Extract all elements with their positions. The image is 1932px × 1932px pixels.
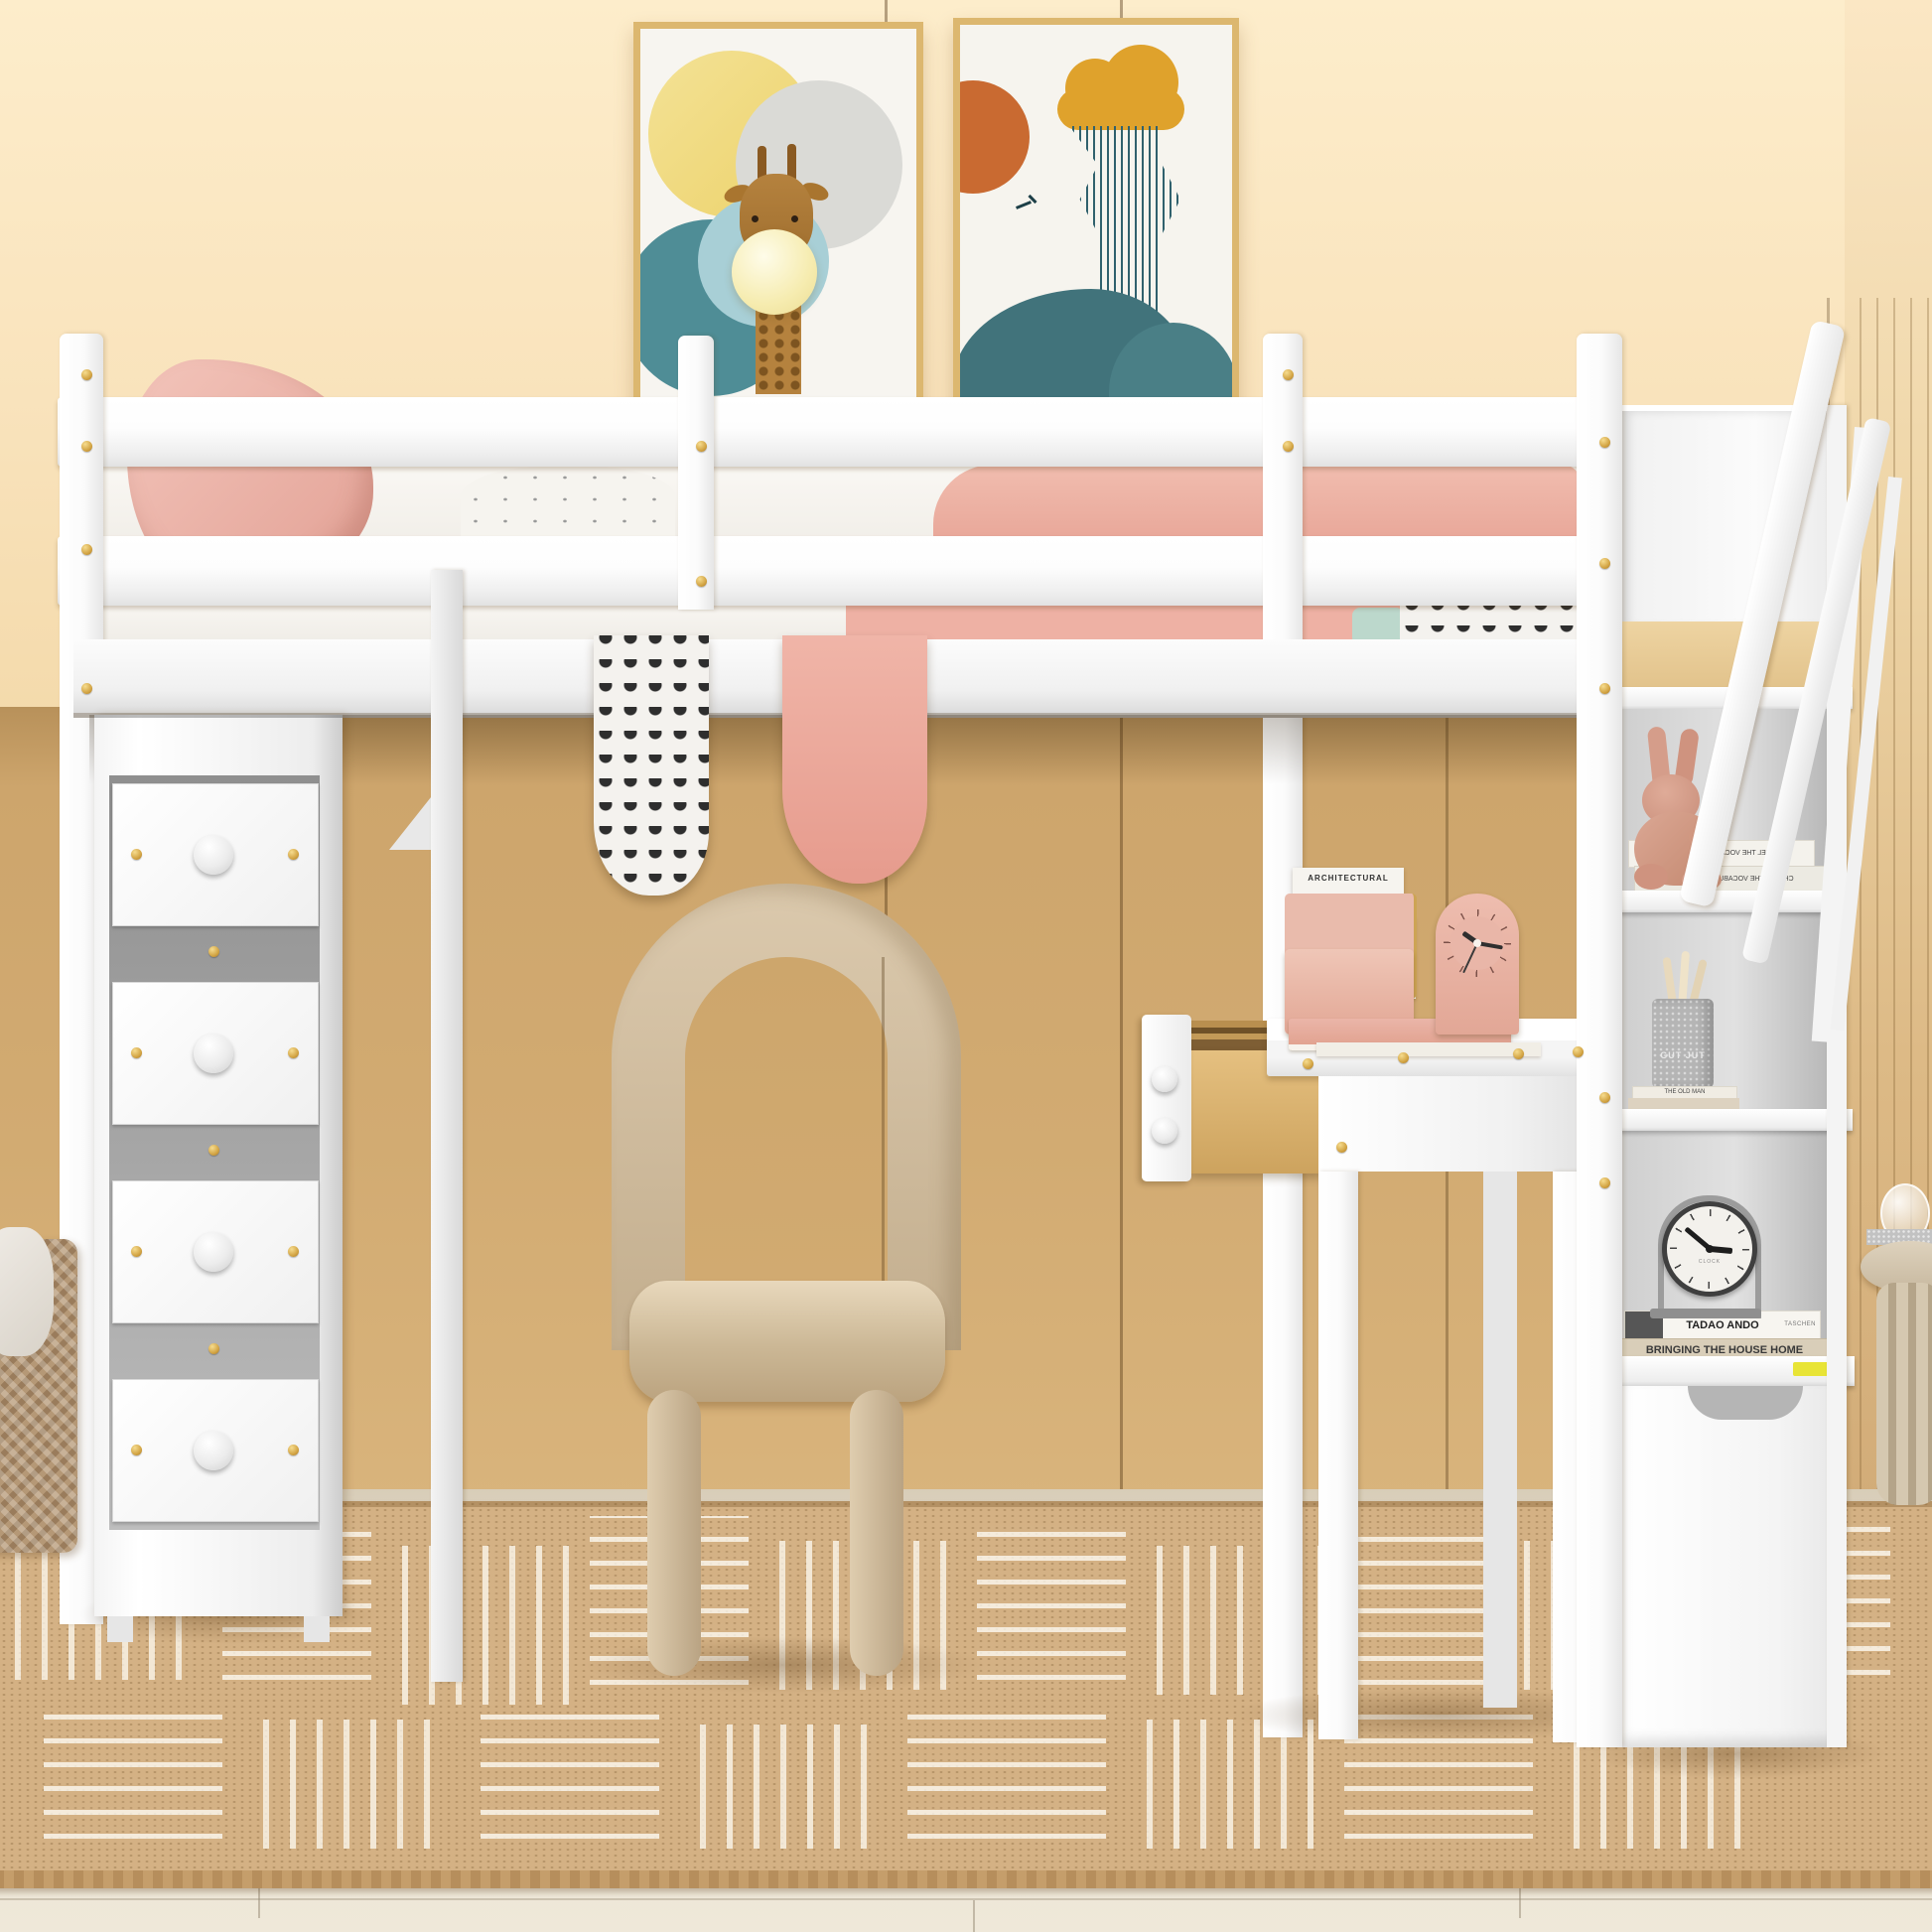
screw-icon	[1283, 369, 1294, 380]
chest-leg	[304, 1616, 330, 1642]
screw-icon	[1599, 683, 1610, 694]
chest-drawer-knob	[194, 1034, 233, 1073]
screw-icon	[208, 1145, 219, 1156]
blanket-pink	[933, 465, 1581, 544]
chair-shadow	[584, 1636, 985, 1694]
chest-drawer-knob	[194, 835, 233, 875]
basket-cloth	[0, 1227, 54, 1356]
desk-clock-center-dot	[1473, 939, 1481, 947]
drawer-arc-handle	[1688, 1386, 1803, 1420]
rug-pattern-block	[1344, 1521, 1493, 1695]
art-print-giraffe	[633, 22, 923, 413]
rug-braided-border	[0, 1870, 1932, 1888]
chest-drawer-knob	[194, 1431, 233, 1470]
chair-seat	[629, 1281, 945, 1402]
screw-icon	[1573, 1046, 1584, 1057]
screw-icon	[1336, 1142, 1347, 1153]
shelf-clock-face: CLOCK	[1662, 1201, 1757, 1297]
screw-icon	[696, 441, 707, 452]
screw-icon	[1283, 441, 1294, 452]
rug-pattern-block	[391, 1546, 570, 1705]
rug-pattern-block	[44, 1710, 222, 1849]
rug-pattern-block	[977, 1526, 1126, 1690]
rug-pattern-block	[689, 1725, 878, 1849]
shelf-clock: CLOCK	[1648, 1187, 1769, 1326]
guardrail-top	[58, 397, 1592, 467]
shelf-clock-base	[1650, 1309, 1761, 1318]
screw-icon	[1599, 1092, 1610, 1103]
screw-icon	[131, 1047, 142, 1058]
hanging-blanket-dino	[594, 635, 709, 896]
shelf-clock-ticks: CLOCK	[1670, 1209, 1749, 1289]
screw-icon	[81, 683, 92, 694]
tower-shelf	[1614, 891, 1853, 912]
screw-icon	[1513, 1048, 1524, 1059]
art-sun-orange	[953, 80, 1030, 194]
tower-post-left	[1577, 334, 1622, 1747]
pencil-cup: GUT JUT	[1652, 999, 1714, 1088]
screw-icon	[1398, 1052, 1409, 1063]
screw-icon	[208, 1343, 219, 1354]
screw-icon	[1599, 1177, 1610, 1188]
tower-shelf-lip	[1608, 1356, 1855, 1386]
book-white-on-desk	[1316, 1042, 1541, 1056]
guardrail-bottom	[58, 536, 1592, 606]
bed-post-center	[678, 336, 714, 610]
bunny-foot	[1634, 864, 1668, 890]
desk-open-drawer-front	[1142, 1015, 1191, 1181]
bed-support-post	[431, 570, 463, 1682]
chest-leg	[107, 1616, 133, 1642]
pencil-cup-label: GUT JUT	[1652, 1050, 1714, 1060]
chest-cavity	[109, 775, 320, 1530]
giraffe-eye	[791, 215, 798, 222]
desk-leg-rear	[1483, 1172, 1517, 1708]
book-under	[1628, 1098, 1739, 1109]
floor-plank-joint	[973, 1900, 975, 1932]
rug-pattern-block	[252, 1720, 451, 1849]
screw-icon	[696, 576, 707, 587]
book-publisher-text: TASCHEN	[1784, 1321, 1816, 1327]
screw-icon	[288, 849, 299, 860]
rug-pattern-block	[1136, 1720, 1314, 1849]
art-cloud	[1057, 88, 1184, 130]
screw-icon	[1303, 1058, 1313, 1069]
screw-icon	[208, 946, 219, 957]
magazine-title: ARCHITECTURAL	[1293, 874, 1404, 883]
drawer-chest	[94, 715, 343, 1616]
screw-icon	[288, 1445, 299, 1455]
chest-drawer-knob	[194, 1232, 233, 1272]
art-print-mountain	[953, 18, 1239, 413]
desk-clock-ticks	[1444, 909, 1511, 977]
screw-icon	[81, 544, 92, 555]
screw-icon	[131, 849, 142, 860]
screw-icon	[131, 1445, 142, 1455]
rug-pattern-block	[907, 1710, 1106, 1849]
screw-icon	[288, 1246, 299, 1257]
tower-storage-drawer	[1622, 1386, 1845, 1747]
hanging-blanket-pink	[782, 635, 927, 884]
giraffe-eye	[752, 215, 759, 222]
screw-icon	[1599, 437, 1610, 448]
desk-drawer-knob	[1152, 1066, 1177, 1092]
bubblegum-bubble	[732, 229, 817, 315]
room-photo: ARCHITECTURAL ARCHITECTURAL CHANEL THE V…	[0, 0, 1932, 1932]
desk-leg-front-left	[1318, 1172, 1358, 1739]
screw-icon	[131, 1246, 142, 1257]
screw-icon	[81, 369, 92, 380]
book-spine-text: THE OLD MAN	[1633, 1087, 1736, 1098]
side-table-fluted-base	[1876, 1283, 1932, 1505]
rug-pattern-block	[481, 1715, 659, 1849]
shelf-clock-label: CLOCK	[1670, 1259, 1749, 1265]
screw-icon	[288, 1047, 299, 1058]
tower-shelf	[1614, 1109, 1853, 1131]
art-bird-icon	[1016, 201, 1032, 209]
pillow-print-white	[461, 467, 675, 544]
screw-icon	[1599, 558, 1610, 569]
desk-apron	[1318, 1076, 1592, 1172]
desk-clock	[1436, 894, 1519, 1035]
chair-leg	[850, 1390, 903, 1676]
chair-leg	[647, 1390, 701, 1676]
shelf-clock-center-dot	[1706, 1245, 1714, 1253]
screw-icon	[81, 441, 92, 452]
desk-drawer-knob	[1152, 1118, 1177, 1144]
